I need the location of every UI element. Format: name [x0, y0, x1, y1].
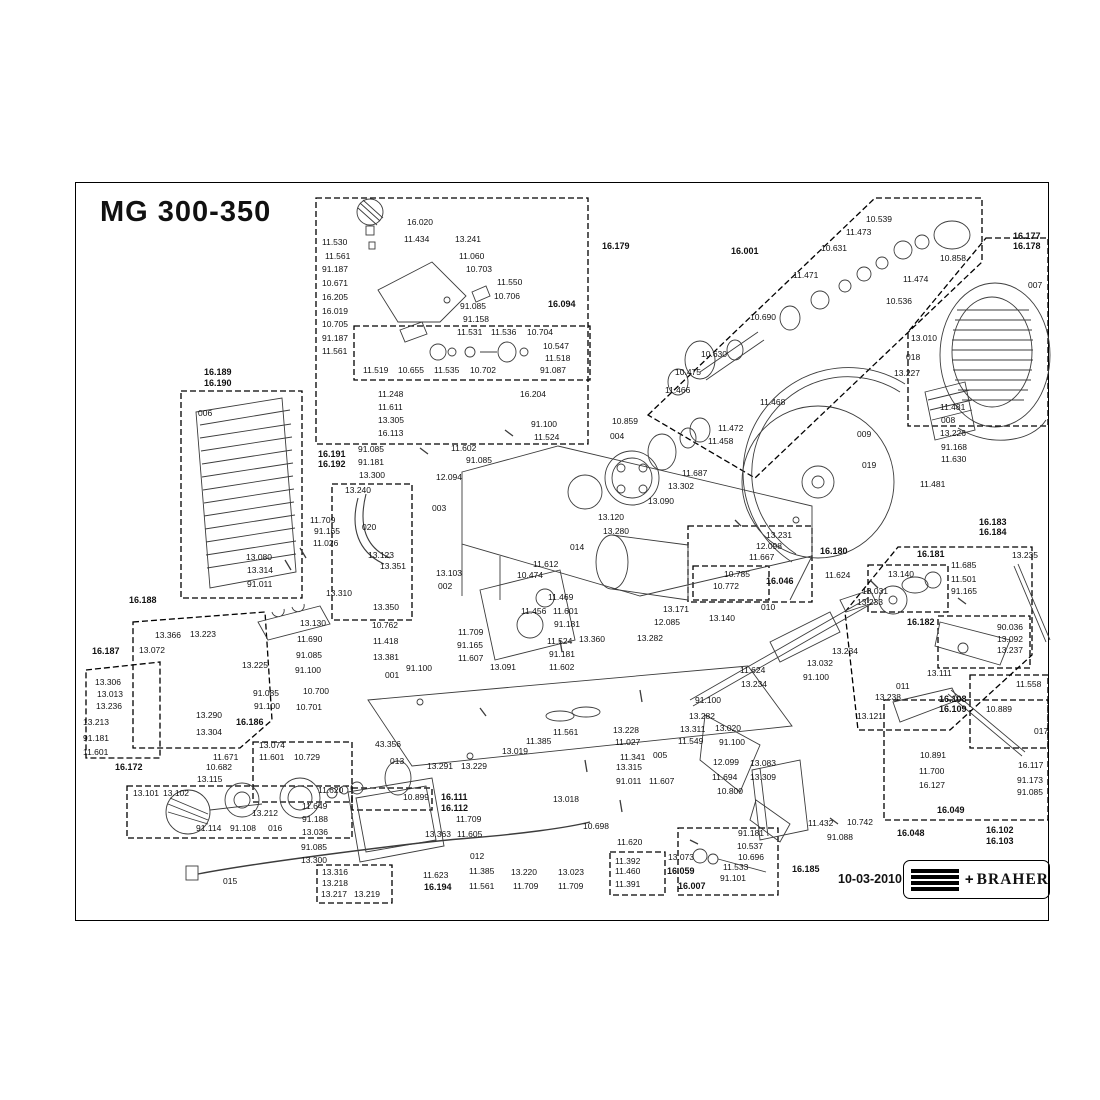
part-label-11.481: 11.481	[920, 480, 945, 489]
part-label-10.800: 10.800	[717, 787, 743, 796]
part-label-10.682: 10.682	[206, 763, 232, 772]
group-label-16.177: 16.177	[1013, 232, 1041, 241]
part-label-13.291: 13.291	[427, 762, 453, 771]
part-label-13.310: 13.310	[326, 589, 352, 598]
part-label-13.212: 13.212	[252, 809, 278, 818]
part-label-91.085: 91.085	[358, 445, 384, 454]
part-label-13.381: 13.381	[373, 653, 399, 662]
part-label-11.518: 11.518	[545, 354, 570, 363]
group-label-16.102: 16.102	[986, 826, 1014, 835]
illustration-parts	[166, 199, 1050, 880]
part-label-13.223: 13.223	[190, 630, 216, 639]
part-label-007: 007	[1028, 281, 1042, 290]
part-label-001: 001	[385, 671, 399, 680]
part-label-11.471: 11.471	[793, 271, 818, 280]
group-label-16.191: 16.191	[318, 450, 346, 459]
part-label-11.418: 11.418	[373, 637, 398, 646]
group-label-16.111: 16.111	[441, 793, 468, 802]
part-label-11.524: 11.524	[534, 433, 559, 442]
part-label-16.113: 16.113	[378, 429, 403, 438]
part-label-11.391: 11.391	[615, 880, 640, 889]
part-label-11.620: 11.620	[617, 838, 642, 847]
part-label-11.524: 11.524	[547, 637, 572, 646]
part-label-13.315: 13.315	[616, 763, 642, 772]
part-label-10.858: 10.858	[940, 254, 966, 263]
part-label-13.121: 13.121	[857, 712, 883, 721]
part-label-004: 004	[610, 432, 624, 441]
group-label-16.179: 16.179	[602, 242, 630, 251]
part-label-43.356: 43.356	[375, 740, 401, 749]
part-label-003: 003	[432, 504, 446, 513]
part-label-11.473: 11.473	[846, 228, 871, 237]
group-label-16.049: 16.049	[937, 806, 965, 815]
part-label-11.432: 11.432	[808, 819, 833, 828]
table-part	[368, 666, 792, 766]
part-label-10.696: 10.696	[738, 853, 764, 862]
part-label-13.111: 13.111	[927, 669, 952, 678]
part-label-11.561: 11.561	[322, 347, 347, 356]
part-label-10.547: 10.547	[543, 342, 569, 351]
part-label-13.240: 13.240	[345, 486, 371, 495]
part-label-11.612: 11.612	[533, 560, 558, 569]
part-label-91.011: 91.011	[247, 580, 272, 589]
part-label-009: 009	[857, 430, 871, 439]
part-label-91.100: 91.100	[406, 664, 432, 673]
blade-housing-part	[462, 446, 812, 600]
part-label-10.703: 10.703	[466, 265, 492, 274]
part-label-10.701: 10.701	[296, 703, 322, 712]
part-label-16.020: 16.020	[407, 218, 433, 227]
part-label-11.601: 11.601	[259, 753, 284, 762]
part-label-13.140: 13.140	[888, 570, 914, 579]
part-label-017: 017	[1034, 727, 1048, 736]
part-label-13.091: 13.091	[490, 663, 516, 672]
part-label-13.171: 13.171	[663, 605, 689, 614]
group-label-16.188: 16.188	[129, 596, 157, 605]
group-label-16.189: 16.189	[204, 368, 232, 377]
part-label-13.220: 13.220	[511, 868, 537, 877]
part-label-13.120: 13.120	[598, 513, 624, 522]
part-label-13.226: 13.226	[940, 429, 966, 438]
part-label-10.700: 10.700	[303, 687, 329, 696]
part-label-005: 005	[653, 751, 667, 760]
part-label-13.130: 13.130	[300, 619, 326, 628]
part-label-13.115: 13.115	[197, 775, 222, 784]
part-label-13.280: 13.280	[603, 527, 629, 536]
part-label-91.187: 91.187	[322, 334, 348, 343]
part-label-91.168: 91.168	[941, 443, 967, 452]
part-label-10.705: 10.705	[322, 320, 348, 329]
part-label-12.094: 12.094	[436, 473, 462, 482]
part-label-10.772: 10.772	[713, 582, 739, 591]
part-label-11.026: 11.026	[313, 539, 338, 548]
part-label-13.074: 13.074	[259, 741, 285, 750]
part-label-11.687: 11.687	[682, 469, 707, 478]
part-label-13.305: 13.305	[378, 416, 404, 425]
part-label-91.108: 91.108	[230, 824, 256, 833]
part-label-16.117: 16.117	[1018, 761, 1043, 770]
part-label-11.602: 11.602	[549, 663, 574, 672]
part-label-11.700: 11.700	[919, 767, 944, 776]
part-label-018: 018	[906, 353, 920, 362]
part-label-13.351: 13.351	[380, 562, 406, 571]
part-label-91.101: 91.101	[720, 874, 746, 883]
part-label-10.785: 10.785	[724, 570, 750, 579]
small-hardware-row	[430, 342, 528, 362]
part-label-91.188: 91.188	[302, 815, 328, 824]
part-label-11.460: 11.460	[615, 867, 640, 876]
motor-part	[596, 418, 710, 600]
part-label-91.158: 91.158	[463, 315, 489, 324]
part-label-91.181: 91.181	[83, 734, 109, 743]
group-label-16.059: 16.059	[667, 867, 695, 876]
part-label-11.611: 11.611	[378, 403, 403, 412]
group-label-16.190: 16.190	[204, 379, 232, 388]
part-label-10.704: 10.704	[527, 328, 553, 337]
part-label-016: 016	[268, 824, 282, 833]
part-label-11.466: 11.466	[665, 386, 690, 395]
part-label-13.217: 13.217	[321, 890, 347, 899]
part-label-13.302: 13.302	[668, 482, 694, 491]
part-label-10.537: 10.537	[737, 842, 763, 851]
part-label-91.011: 91.011	[616, 777, 641, 786]
part-label-13.309: 13.309	[750, 773, 776, 782]
part-label-11.385: 11.385	[469, 867, 494, 876]
part-label-13.101: 13.101	[133, 789, 159, 798]
part-label-13.080: 13.080	[246, 553, 272, 562]
part-label-11.341: 11.341	[620, 753, 645, 762]
revision-date: 10-03-2010	[838, 872, 902, 886]
part-label-11.649: 11.649	[302, 802, 327, 811]
part-label-11.535: 11.535	[434, 366, 459, 375]
part-label-91.100: 91.100	[719, 738, 745, 747]
part-label-91.085: 91.085	[466, 456, 492, 465]
part-label-91.173: 91.173	[1017, 776, 1043, 785]
part-label-91.100: 91.100	[695, 696, 721, 705]
part-label-11.501: 11.501	[951, 575, 976, 584]
part-label-11.531: 11.531	[457, 328, 482, 337]
part-label-13.072: 13.072	[139, 646, 165, 655]
part-label-10.631: 10.631	[821, 244, 847, 253]
part-label-13.227: 13.227	[894, 369, 920, 378]
part-label-11.561: 11.561	[325, 252, 350, 261]
part-label-015: 015	[223, 877, 237, 886]
part-label-11.530: 11.530	[322, 238, 347, 247]
part-label-012: 012	[470, 852, 484, 861]
part-label-13.290: 13.290	[196, 711, 222, 720]
part-label-11.392: 11.392	[615, 857, 640, 866]
part-label-91.085: 91.085	[1017, 788, 1043, 797]
part-label-11.601: 11.601	[83, 748, 108, 757]
part-label-91.165: 91.165	[457, 641, 483, 650]
part-label-13.236: 13.236	[96, 702, 122, 711]
part-label-10.899: 10.899	[403, 793, 429, 802]
part-label-13.013: 13.013	[97, 690, 123, 699]
parts-diagram-page: MG 300-350	[0, 0, 1100, 1100]
group-label-16.180: 16.180	[820, 547, 848, 556]
part-label-10.536: 10.536	[886, 297, 912, 306]
group-label-16.181: 16.181	[917, 550, 945, 559]
part-label-11.468: 11.468	[760, 398, 785, 407]
part-label-11.624: 11.624	[740, 666, 765, 675]
part-label-11.561: 11.561	[553, 728, 578, 737]
part-label-91.085: 91.085	[460, 302, 486, 311]
part-label-10.859: 10.859	[612, 417, 638, 426]
part-label-13.311: 13.311	[680, 725, 705, 734]
part-label-13.238: 13.238	[875, 693, 901, 702]
part-label-13.020: 13.020	[715, 724, 741, 733]
part-label-16.205: 16.205	[322, 293, 348, 302]
part-label-10.671: 10.671	[322, 279, 348, 288]
part-label-11.469: 11.469	[548, 593, 573, 602]
group-label-16.001: 16.001	[731, 247, 759, 256]
part-label-12.085: 12.085	[654, 618, 680, 627]
part-label-10.655: 10.655	[398, 366, 424, 375]
part-label-91.085: 91.085	[296, 651, 322, 660]
part-label-11.623: 11.623	[423, 871, 448, 880]
part-label-13.123: 13.123	[368, 551, 394, 560]
part-label-12.098: 12.098	[756, 542, 782, 551]
part-label-13.103: 13.103	[436, 569, 462, 578]
part-label-12.099: 12.099	[713, 758, 739, 767]
part-label-13.235: 13.235	[1012, 551, 1038, 560]
part-label-13.140: 13.140	[709, 614, 735, 623]
part-label-13.233: 13.233	[857, 598, 883, 607]
part-label-90.036: 90.036	[997, 623, 1023, 632]
part-label-91.100: 91.100	[254, 702, 280, 711]
part-label-11.607: 11.607	[649, 777, 674, 786]
group-label-16.186: 16.186	[236, 718, 264, 727]
part-label-11.709: 11.709	[310, 516, 335, 525]
part-label-13.234: 13.234	[832, 647, 858, 656]
part-label-11.667: 11.667	[749, 553, 774, 562]
part-label-11.607: 11.607	[458, 654, 483, 663]
part-label-10.630: 10.630	[701, 350, 727, 359]
part-label-91.181: 91.181	[738, 829, 764, 838]
group-label-16.103: 16.103	[986, 837, 1014, 846]
logo-stripes-icon	[911, 869, 959, 891]
part-label-13.010: 13.010	[911, 334, 937, 343]
part-label-11.474: 11.474	[903, 275, 928, 284]
part-label-13.023: 13.023	[558, 868, 584, 877]
part-label-10.891: 10.891	[920, 751, 946, 760]
part-label-13.218: 13.218	[322, 879, 348, 888]
group-label-16.007: 16.007	[678, 882, 706, 891]
part-label-16.019: 16.019	[322, 307, 348, 316]
group-label-16.094: 16.094	[548, 300, 576, 309]
part-label-11.060: 11.060	[459, 252, 484, 261]
part-label-10.698: 10.698	[583, 822, 609, 831]
part-label-019: 019	[862, 461, 876, 470]
part-label-13.350: 13.350	[373, 603, 399, 612]
part-label-91.100: 91.100	[803, 673, 829, 682]
part-label-13.366: 13.366	[155, 631, 181, 640]
part-label-13.300: 13.300	[359, 471, 385, 480]
part-label-13.225: 13.225	[242, 661, 268, 670]
part-label-11.620: 11.620	[318, 786, 343, 795]
part-label-11.671: 11.671	[213, 753, 238, 762]
part-label-13.363: 13.363	[425, 830, 451, 839]
part-label-006: 006	[198, 409, 212, 418]
logo-plus-icon: +	[965, 871, 974, 888]
part-label-11.549: 11.549	[678, 737, 703, 746]
group-label-16.108: 16.108	[939, 695, 967, 704]
part-label-11.550: 11.550	[497, 278, 522, 287]
part-label-11.458: 11.458	[708, 437, 733, 446]
part-label-11.456: 11.456	[521, 607, 546, 616]
part-label-11.709: 11.709	[458, 628, 483, 637]
group-label-16.185: 16.185	[792, 865, 820, 874]
part-label-11.248: 11.248	[378, 390, 403, 399]
part-label-13.228: 13.228	[613, 726, 639, 735]
part-label-13.102: 13.102	[163, 789, 189, 798]
part-label-11.709: 11.709	[513, 882, 538, 891]
group-label-16.187: 16.187	[92, 647, 120, 656]
part-label-10.729: 10.729	[294, 753, 320, 762]
part-label-16.127: 16.127	[919, 781, 945, 790]
group-label-16.172: 16.172	[115, 763, 143, 772]
part-label-13.360: 13.360	[579, 635, 605, 644]
part-label-10.690: 10.690	[750, 313, 776, 322]
part-label-91.181: 91.181	[554, 620, 580, 629]
part-label-11.533: 11.533	[723, 863, 748, 872]
part-label-11.558: 11.558	[1016, 680, 1041, 689]
part-label-91.181: 91.181	[549, 650, 575, 659]
part-label-11.602: 11.602	[451, 444, 476, 453]
part-label-11.027: 11.027	[615, 738, 640, 747]
part-label-002: 002	[438, 582, 452, 591]
part-label-91.100: 91.100	[295, 666, 321, 675]
part-label-11.472: 11.472	[718, 424, 743, 433]
part-label-008: 008	[941, 416, 955, 425]
part-label-11.709: 11.709	[558, 882, 583, 891]
part-label-11.694: 11.694	[712, 773, 737, 782]
part-label-13.231: 13.231	[766, 531, 792, 540]
part-label-11.709: 11.709	[456, 815, 481, 824]
group-label-16.192: 16.192	[318, 460, 346, 469]
part-label-91.114: 91.114	[196, 824, 221, 833]
part-label-13.314: 13.314	[247, 566, 273, 575]
part-label-011: 011	[896, 682, 910, 691]
part-label-11.519: 11.519	[363, 366, 388, 375]
part-label-13.019: 13.019	[502, 747, 528, 756]
part-label-91.165: 91.165	[314, 527, 340, 536]
group-label-16.194: 16.194	[424, 883, 452, 892]
group-label-16.112: 16.112	[441, 804, 468, 813]
part-label-13.031: 13.031	[862, 587, 888, 596]
part-label-010: 010	[761, 603, 775, 612]
part-label-13.282: 13.282	[689, 712, 715, 721]
part-label-11.561: 11.561	[469, 882, 494, 891]
part-label-91.085: 91.085	[253, 689, 279, 698]
part-label-13.237: 13.237	[997, 646, 1023, 655]
logo-brand-text: BRAHER	[977, 871, 1049, 889]
part-label-10.889: 10.889	[986, 705, 1012, 714]
part-label-13.234: 13.234	[741, 680, 767, 689]
part-label-10.762: 10.762	[372, 621, 398, 630]
part-label-11.690: 11.690	[297, 635, 322, 644]
part-label-91.181: 91.181	[358, 458, 384, 467]
part-label-16.204: 16.204	[520, 390, 546, 399]
part-label-13.090: 13.090	[648, 497, 674, 506]
part-label-91.100: 91.100	[531, 420, 557, 429]
part-label-11.624: 11.624	[825, 571, 850, 580]
group-box-16.179	[316, 198, 588, 444]
part-label-014: 014	[570, 543, 584, 552]
part-label-91.087: 91.087	[540, 366, 566, 375]
part-label-13.083: 13.083	[750, 759, 776, 768]
part-label-13.092: 13.092	[997, 635, 1023, 644]
group-label-16.183: 16.183	[979, 518, 1007, 527]
part-label-13.032: 13.032	[807, 659, 833, 668]
group-label-16.178: 16.178	[1013, 242, 1041, 251]
part-label-11.434: 11.434	[404, 235, 429, 244]
part-label-11.536: 11.536	[491, 328, 516, 337]
part-label-013: 013	[390, 757, 404, 766]
part-label-13.300: 13.300	[301, 856, 327, 865]
part-label-13.282: 13.282	[637, 634, 663, 643]
part-label-10.702: 10.702	[470, 366, 496, 375]
part-label-10.539: 10.539	[866, 215, 892, 224]
part-label-11.481: 11.481	[940, 403, 965, 412]
part-label-11.630: 11.630	[941, 455, 966, 464]
part-label-11.605: 11.605	[457, 830, 482, 839]
part-label-11.601: 11.601	[553, 607, 578, 616]
part-label-91.088: 91.088	[827, 833, 853, 842]
part-label-10.474: 10.474	[517, 571, 543, 580]
part-label-11.385: 11.385	[526, 737, 551, 746]
group-label-16.046: 16.046	[766, 577, 794, 586]
part-label-13.073: 13.073	[668, 853, 694, 862]
group-label-16.182: 16.182	[907, 618, 935, 627]
braher-logo: + BRAHER	[903, 860, 1050, 899]
part-label-11.685: 11.685	[951, 561, 976, 570]
group-box-16.180	[688, 526, 812, 602]
part-label-10.742: 10.742	[847, 818, 873, 827]
group-label-16.048: 16.048	[897, 829, 925, 838]
part-label-13.219: 13.219	[354, 890, 380, 899]
part-label-13.306: 13.306	[95, 678, 121, 687]
part-label-13.229: 13.229	[461, 762, 487, 771]
group-label-16.184: 16.184	[979, 528, 1007, 537]
part-label-91.085: 91.085	[301, 843, 327, 852]
part-label-13.316: 13.316	[322, 868, 348, 877]
part-label-13.036: 13.036	[302, 828, 328, 837]
part-label-10.475: 10.475	[675, 368, 701, 377]
part-label-91.165: 91.165	[951, 587, 977, 596]
part-label-91.187: 91.187	[322, 265, 348, 274]
part-label-10.706: 10.706	[494, 292, 520, 301]
bearing-train-part	[668, 221, 970, 395]
part-label-020: 020	[362, 523, 376, 532]
part-label-13.018: 13.018	[553, 795, 579, 804]
part-label-13.213: 13.213	[83, 718, 109, 727]
part-label-13.304: 13.304	[196, 728, 222, 737]
group-label-16.109: 16.109	[939, 705, 967, 714]
part-label-13.241: 13.241	[455, 235, 481, 244]
